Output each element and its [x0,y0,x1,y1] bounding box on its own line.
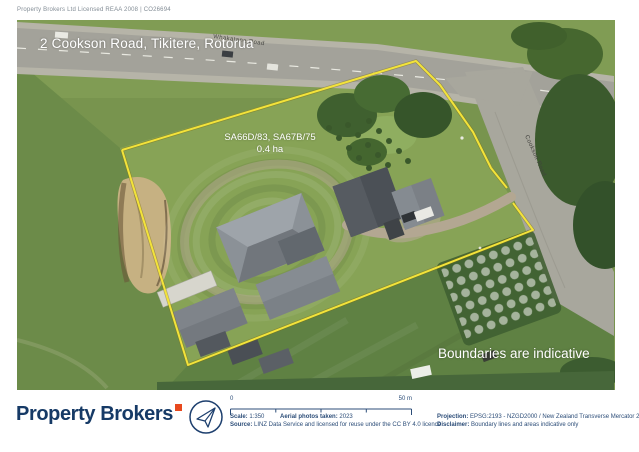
woodchip-pile [118,177,172,293]
property-address-title: 2 Cookson Road, Tikitere, Rotorua [40,36,254,51]
property-brokers-logo: Property Brokers [16,403,182,426]
lot-area: 0.4 ha [224,144,315,156]
map-metadata-right: Projection: EPSG:2193 - NZGD2000 / New Z… [437,413,639,429]
logo-text: Property Brokers [16,403,173,425]
projection-label: Projection: [437,414,468,420]
map-metadata-left: Scale: 1:350 Aerial photos taken: 2023 S… [230,413,441,429]
license-text: Property Brokers Ltd Licensed REAA 2008 … [17,7,171,13]
scale-start-label: 0 [230,396,233,402]
property-map-page: Property Brokers Ltd Licensed REAA 2008 … [0,0,639,452]
lot-titles: SA66D/83, SA67B/75 [224,132,315,144]
footer: Property Brokers 0 50 m Scale: [0,390,639,452]
scale-end-label: 50 m [399,396,412,402]
boundaries-indicative-note: Boundaries are indicative [438,346,590,361]
lot-titles-label: SA66D/83, SA67B/75 0.4 ha [224,132,315,156]
aerial-value: 2023 [339,414,352,420]
scale-value: 1:350 [249,414,264,420]
aerial-photo: Whakatane Road Cookson Road 2 Cookson Ro… [17,20,615,390]
disclaimer-value: Boundary lines and areas indicative only [471,422,578,428]
disclaimer-label: Disclaimer: [437,422,469,428]
compass-icon [188,399,224,435]
aerial-label: Aerial photos taken: [280,414,338,420]
logo-square [175,404,182,411]
projection-value: EPSG:2193 - NZGD2000 / New Zealand Trans… [470,414,639,420]
aerial-scene: Whakatane Road Cookson Road [17,20,615,390]
scale-label: Scale: [230,414,248,420]
source-label: Source: [230,422,252,428]
source-value: LINZ Data Service and licensed for reuse… [254,422,441,428]
